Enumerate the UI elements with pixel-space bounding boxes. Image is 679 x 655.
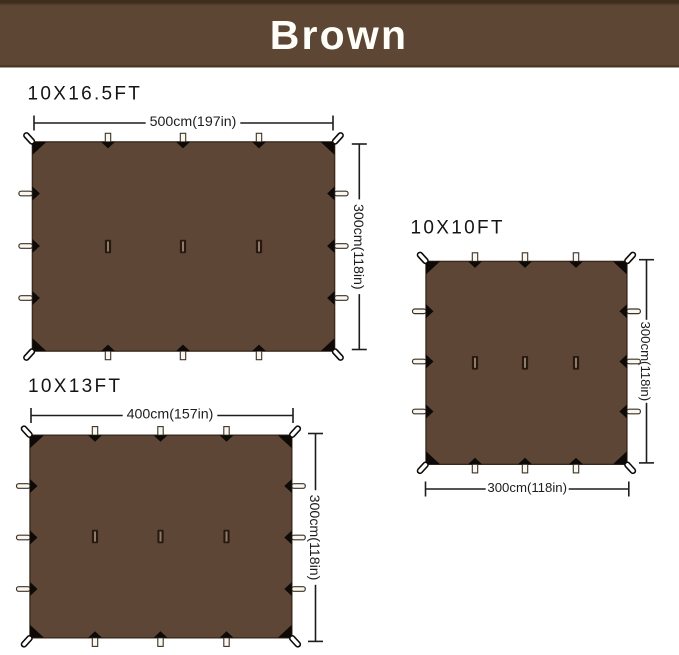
- svg-text:10X13FT: 10X13FT: [28, 376, 122, 397]
- svg-text:400cm(157in): 400cm(157in): [127, 406, 214, 422]
- svg-text:10X16.5FT: 10X16.5FT: [28, 84, 143, 105]
- svg-text:300cm(118in): 300cm(118in): [306, 495, 322, 581]
- svg-text:300cm(118in): 300cm(118in): [487, 480, 567, 495]
- svg-text:Brown: Brown: [270, 12, 409, 58]
- svg-text:10X10FT: 10X10FT: [411, 218, 505, 239]
- svg-text:500cm(197in): 500cm(197in): [150, 114, 237, 130]
- svg-text:300cm(118in): 300cm(118in): [350, 204, 366, 290]
